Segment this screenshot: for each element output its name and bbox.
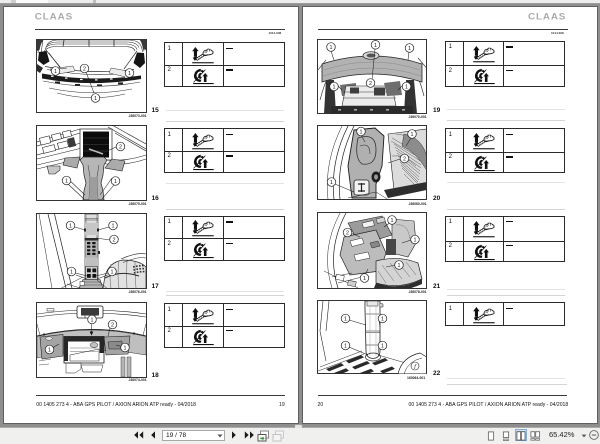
svg-text:1: 1 xyxy=(410,132,413,138)
svg-text:1: 1 xyxy=(344,316,347,322)
svg-text:1: 1 xyxy=(114,179,117,185)
svg-text:1: 1 xyxy=(111,269,114,275)
svg-text:1: 1 xyxy=(69,223,72,229)
svg-text:1: 1 xyxy=(374,43,377,49)
svg-text:1: 1 xyxy=(344,343,347,349)
svg-text:1: 1 xyxy=(408,46,411,52)
svg-text:2: 2 xyxy=(113,237,116,243)
svg-text:1: 1 xyxy=(405,84,408,90)
svg-text:2: 2 xyxy=(119,145,122,151)
svg-text:1: 1 xyxy=(381,316,384,322)
svg-text:1: 1 xyxy=(359,130,362,136)
svg-text:2: 2 xyxy=(83,67,86,73)
svg-text:2: 2 xyxy=(403,157,406,163)
svg-text:2: 2 xyxy=(111,322,114,328)
svg-text:2: 2 xyxy=(369,81,372,87)
svg-text:1: 1 xyxy=(48,347,51,353)
svg-text:1: 1 xyxy=(112,223,115,229)
svg-text:1: 1 xyxy=(65,179,68,185)
svg-text:1: 1 xyxy=(329,45,332,51)
svg-text:1: 1 xyxy=(397,263,400,269)
svg-text:2: 2 xyxy=(346,231,349,237)
svg-text:1: 1 xyxy=(413,238,416,244)
svg-text:1: 1 xyxy=(332,84,335,90)
svg-text:1: 1 xyxy=(330,180,333,186)
svg-text:1: 1 xyxy=(91,317,94,323)
svg-text:1: 1 xyxy=(94,96,97,102)
svg-text:1: 1 xyxy=(70,269,73,275)
svg-text:1: 1 xyxy=(54,69,57,75)
svg-text:1: 1 xyxy=(390,218,393,224)
svg-text:1: 1 xyxy=(381,343,384,349)
svg-text:1: 1 xyxy=(128,71,131,77)
svg-text:1: 1 xyxy=(363,276,366,282)
svg-text:1: 1 xyxy=(124,345,127,351)
